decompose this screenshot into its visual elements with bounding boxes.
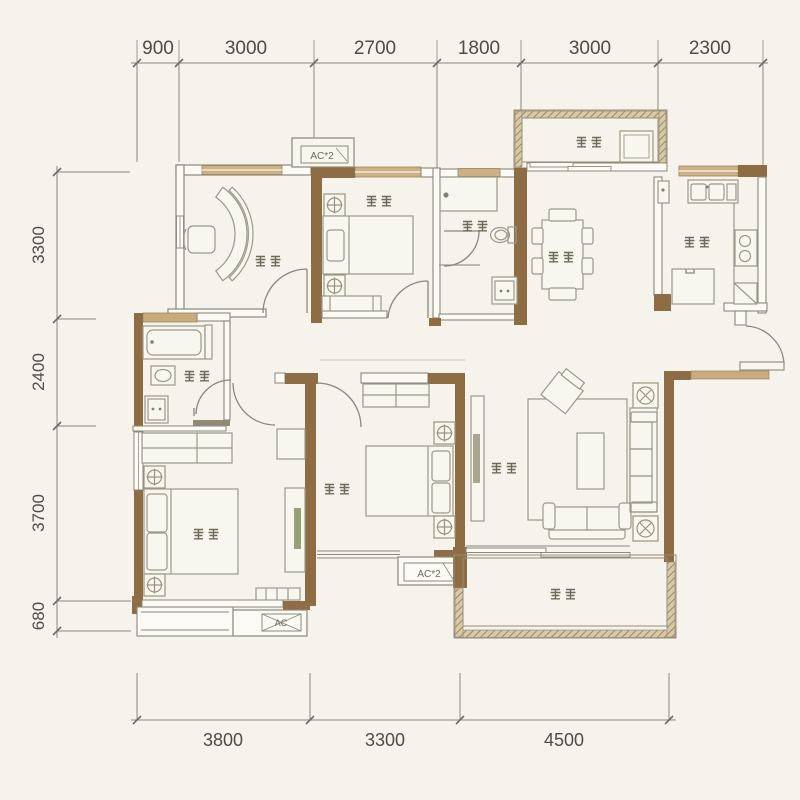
svg-text:AC: AC (275, 618, 288, 628)
svg-text:AC*2: AC*2 (310, 151, 334, 162)
svg-text:3000: 3000 (569, 38, 611, 59)
svg-text:3800: 3800 (203, 730, 243, 750)
svg-text:3700: 3700 (29, 494, 48, 532)
svg-text:900: 900 (142, 38, 174, 59)
svg-text:2400: 2400 (29, 353, 48, 391)
svg-text:3300: 3300 (365, 730, 405, 750)
svg-text:1800: 1800 (458, 38, 500, 59)
svg-text:680: 680 (29, 602, 48, 630)
svg-text:3000: 3000 (225, 38, 267, 59)
svg-text:2700: 2700 (354, 38, 396, 59)
svg-text:3300: 3300 (29, 226, 48, 264)
svg-text:2300: 2300 (689, 38, 731, 59)
svg-text:4500: 4500 (544, 730, 584, 750)
svg-text:AC*2: AC*2 (417, 569, 441, 580)
